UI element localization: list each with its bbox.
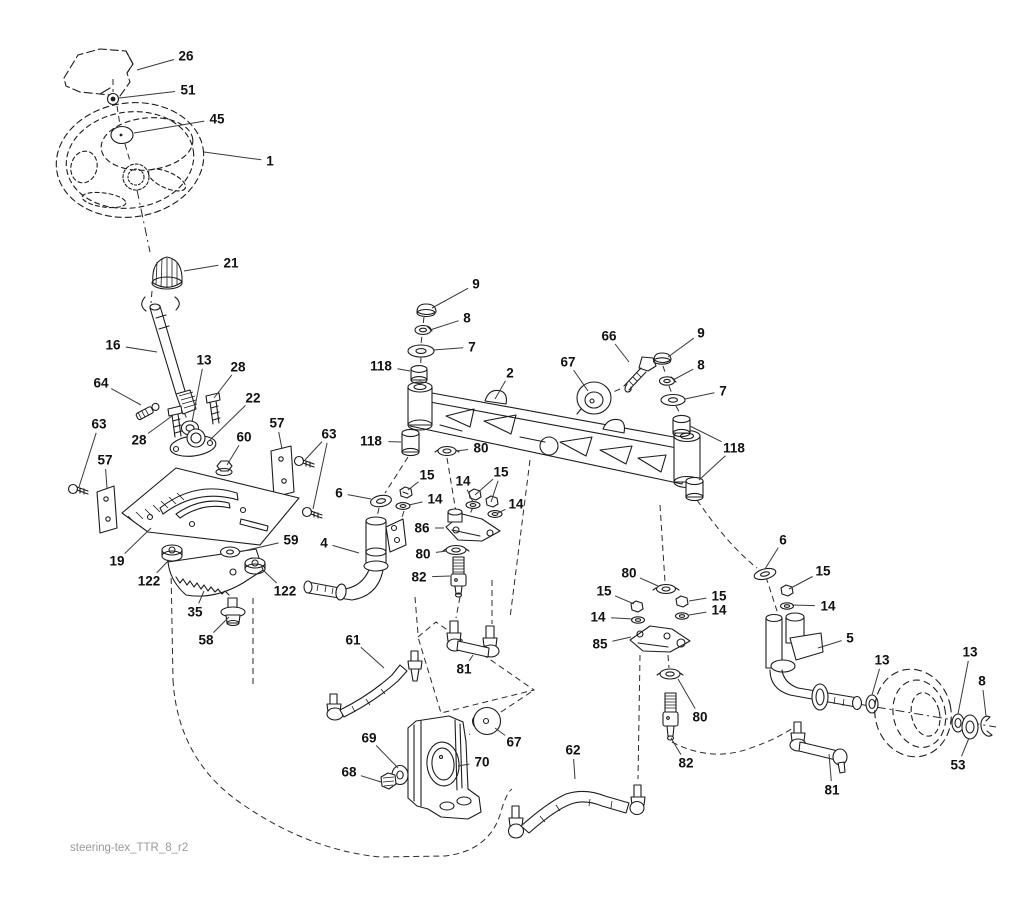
part-80-washer-axle: [435, 447, 459, 456]
callout-6: 6: [335, 486, 343, 501]
callout-15: 15: [815, 564, 831, 579]
leader-line: [615, 344, 629, 362]
leader-line: [433, 348, 463, 350]
callout-15: 15: [711, 589, 727, 604]
callout-28: 28: [131, 433, 147, 448]
callout-80: 80: [415, 547, 430, 562]
part-81-tie-rod-end-right: [790, 722, 847, 773]
callout-35: 35: [187, 605, 203, 620]
callout-62: 62: [565, 743, 580, 758]
part-7-washer-left: [408, 345, 434, 357]
callout-19: 19: [109, 554, 124, 569]
part-2-left-kingpin-boss: [408, 382, 432, 430]
callout-28: 28: [230, 360, 246, 375]
part-122-washer-left: [162, 545, 182, 561]
leader-line: [789, 577, 813, 590]
leader-line: [432, 576, 450, 577]
callout-14: 14: [508, 497, 524, 512]
part-67-bushing-axle: [577, 382, 611, 414]
part-9-cap-right: [654, 353, 672, 364]
callout-14: 14: [427, 492, 443, 507]
part-21-boot: [152, 257, 182, 289]
callout-6: 6: [779, 533, 787, 548]
leader-line: [456, 450, 468, 452]
part-53-washer: [962, 715, 978, 739]
part-28-bolt-upper: [206, 393, 220, 424]
callout-51: 51: [180, 83, 196, 98]
part-7-washer-right: [661, 395, 685, 406]
leader-line: [765, 548, 778, 569]
callout-7: 7: [468, 340, 476, 355]
leader-line: [157, 560, 169, 573]
part-57-plate-left: [97, 486, 117, 533]
callout-63: 63: [91, 417, 107, 432]
leader-line: [409, 502, 423, 505]
callout-59: 59: [283, 533, 298, 548]
callout-66: 66: [601, 329, 617, 344]
callout-80: 80: [473, 441, 488, 456]
leader-line: [495, 728, 505, 735]
part-67-washer-bracket: [473, 708, 501, 735]
part-70-support-bracket: [408, 716, 481, 819]
part-14-washer-85-left: [632, 617, 645, 623]
part-15-nut-85-left: [631, 601, 643, 612]
leader-line: [148, 416, 172, 434]
leader-line: [574, 759, 575, 779]
callout-4: 4: [320, 536, 328, 551]
leader-line: [184, 265, 218, 271]
leader-line: [376, 746, 398, 769]
leader-line: [671, 738, 681, 755]
part-22-bearing-flange: [169, 429, 217, 459]
callout-82: 82: [411, 570, 426, 585]
callout-21: 21: [223, 256, 239, 271]
callout-2: 2: [506, 366, 514, 381]
part-28-bolt-lower: [168, 406, 182, 437]
leader-line: [699, 456, 725, 480]
callout-45: 45: [209, 112, 225, 127]
callout-1: 1: [266, 154, 274, 169]
callout-57: 57: [269, 416, 284, 431]
leader-line: [126, 347, 157, 352]
callout-69: 69: [361, 731, 376, 746]
callout-63: 63: [321, 427, 337, 442]
part-80-washer-right-bottom: [657, 669, 683, 679]
part-80-washer-mid: [443, 546, 469, 555]
part-16-steering-shaft: [142, 297, 197, 414]
leader-line: [263, 570, 277, 583]
callout-53: 53: [950, 758, 966, 773]
part-64-grease-fitting: [135, 402, 160, 420]
part-14-washer-85-center: [676, 613, 689, 619]
leader-line: [137, 60, 174, 71]
callout-13: 13: [874, 653, 890, 668]
leader-line: [361, 647, 384, 668]
part-14-washer-left: [396, 503, 410, 510]
callout-14: 14: [455, 474, 471, 489]
leader-line: [204, 152, 261, 160]
part-15-nut-right: [781, 585, 793, 596]
callout-60: 60: [236, 430, 251, 445]
part-13-washer-axle-inner: [866, 695, 878, 713]
part-82-ball-joint-left: [451, 557, 466, 597]
callout-70: 70: [474, 755, 489, 770]
parts-diagram: 2651451211613286422635760632857191225912…: [0, 0, 1024, 910]
callout-26: 26: [178, 49, 194, 64]
part-63-screw-right-lower: [303, 508, 323, 519]
leader-line: [361, 776, 381, 782]
part-14-washer-center: [466, 502, 480, 509]
part-82-ball-joint-right: [663, 693, 678, 740]
leader-line: [673, 369, 693, 380]
leader-line: [685, 393, 714, 399]
part-81-tie-rod-end-center: [447, 621, 499, 657]
part-1-steering-wheel: [49, 93, 211, 226]
leader-line: [678, 679, 695, 709]
leader-line: [983, 690, 986, 716]
leader-line: [119, 92, 175, 99]
leader-line: [475, 479, 493, 495]
leader-line: [111, 389, 141, 405]
callout-118: 118: [723, 441, 745, 456]
part-57-plate-right: [271, 446, 294, 497]
leader-line: [313, 443, 327, 509]
part-8-lockwasher-right: [660, 377, 677, 385]
leader-line: [408, 482, 418, 490]
leader-line: [612, 637, 631, 641]
leader-line: [689, 598, 706, 601]
leader-line: [962, 738, 970, 756]
callout-81: 81: [824, 783, 840, 798]
part-8-lockwasher-left: [415, 326, 432, 335]
part-51-nut: [108, 94, 119, 105]
callout-9: 9: [697, 326, 705, 341]
leader-line: [432, 288, 468, 308]
callout-5: 5: [846, 631, 854, 646]
part-5-spindle-right: [766, 613, 862, 710]
leader-line: [615, 596, 634, 604]
leader-line: [958, 661, 968, 714]
callout-118: 118: [370, 359, 392, 374]
assembly-axis-lines: [113, 79, 996, 857]
callout-80: 80: [692, 710, 707, 725]
callout-22: 22: [245, 391, 260, 406]
callout-58: 58: [198, 633, 214, 648]
part-6-washer-left: [370, 494, 393, 508]
part-2-axle-beam: [410, 390, 690, 484]
leader-line: [125, 528, 151, 554]
callout-13: 13: [962, 645, 978, 660]
callout-57: 57: [97, 453, 112, 468]
callout-8: 8: [697, 358, 705, 373]
callout-7: 7: [719, 384, 727, 399]
callout-67: 67: [506, 735, 521, 750]
part-26-wheel-insert: [64, 49, 133, 96]
part-60-nut: [216, 461, 232, 476]
callout-15: 15: [493, 465, 509, 480]
part-4-spindle-left: [304, 517, 406, 601]
callout-118: 118: [360, 434, 382, 449]
callout-68: 68: [341, 765, 357, 780]
callout-82: 82: [678, 756, 693, 771]
part-15-nut-85-center: [676, 596, 688, 607]
part-85-steering-arm: [630, 626, 690, 652]
part-61-tie-rod: [327, 651, 422, 720]
leader-line: [668, 338, 694, 357]
callout-14: 14: [820, 599, 836, 614]
leader-line: [106, 469, 107, 488]
callout-86: 86: [414, 521, 430, 536]
drawing-code: steering-tex_TTR_8_r2: [70, 842, 188, 854]
leader-line: [192, 369, 202, 422]
callout-14: 14: [711, 603, 727, 618]
leader-line: [279, 432, 282, 449]
part-62-drag-link: [509, 785, 646, 838]
leader-line: [305, 442, 322, 460]
leader-line: [792, 605, 815, 606]
part-118-bushing-left-top: [411, 366, 427, 384]
callout-61: 61: [345, 633, 361, 648]
leader-line: [430, 321, 459, 330]
callout-122: 122: [274, 584, 297, 599]
callout-14: 14: [590, 610, 606, 625]
leader-line: [436, 551, 447, 552]
callout-64: 64: [93, 376, 109, 391]
part-63-screw-right-upper: [295, 457, 315, 468]
leader-line: [79, 433, 96, 487]
part-63-screw-left: [69, 485, 89, 495]
callout-8: 8: [978, 674, 986, 689]
part-118-bushing-left-bottom: [402, 429, 419, 455]
callout-15: 15: [419, 468, 435, 483]
part-68-nut: [381, 773, 396, 789]
leader-line: [348, 495, 371, 499]
leader-line: [227, 445, 239, 465]
callout-13: 13: [196, 353, 212, 368]
leader-line: [469, 655, 473, 661]
part-118-bushing-right-top: [673, 415, 690, 436]
leader-line: [611, 618, 633, 619]
part-66-bolt: [624, 357, 656, 392]
callout-122: 122: [138, 574, 161, 589]
leader-line: [214, 375, 232, 398]
callout-80: 80: [621, 566, 636, 581]
callout-16: 16: [105, 338, 121, 353]
callout-67: 67: [560, 355, 575, 370]
callout-9: 9: [472, 277, 480, 292]
part-59-washer: [221, 547, 240, 557]
leader-line: [689, 612, 706, 615]
leader-line: [333, 545, 360, 553]
callout-85: 85: [592, 637, 608, 652]
leader-line: [398, 369, 411, 371]
callout-8: 8: [463, 311, 471, 326]
callout-81: 81: [456, 662, 472, 677]
part-9-cap-left: [417, 304, 436, 317]
part-14-washer-right: [781, 603, 794, 609]
leader-line: [640, 578, 658, 586]
leader-line: [213, 617, 229, 633]
callout-15: 15: [596, 584, 612, 599]
part-45-cap-washer: [111, 127, 133, 144]
ghost-wheel: [867, 662, 960, 764]
part-118-bushing-right-bottom: [686, 477, 703, 500]
leader-line: [134, 121, 204, 133]
